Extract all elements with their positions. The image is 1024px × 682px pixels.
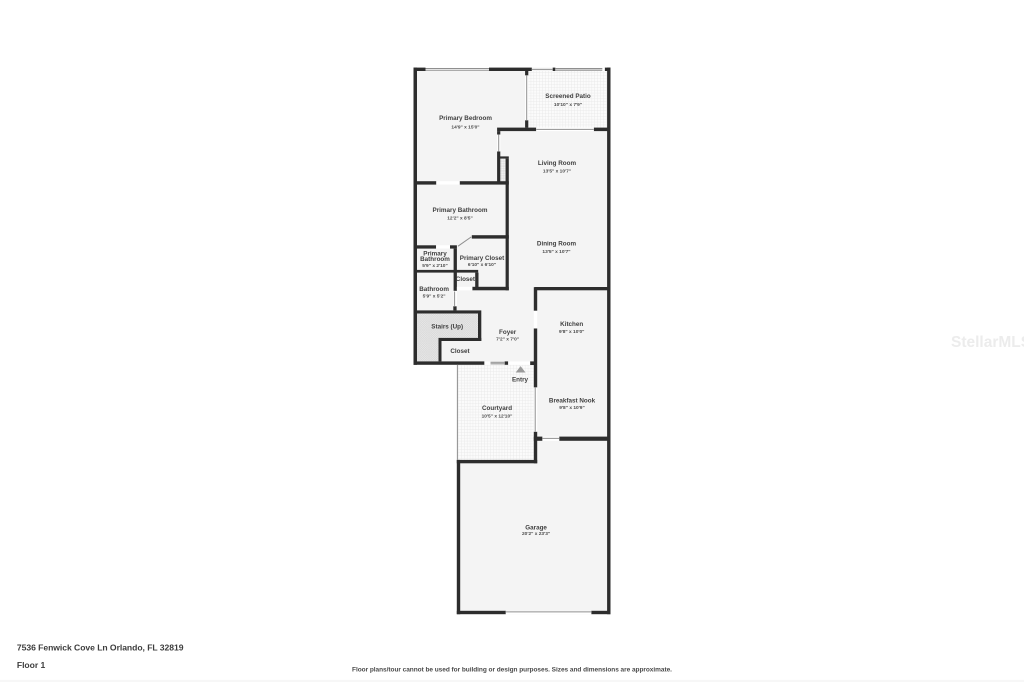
svg-text:Kitchen: Kitchen [560, 321, 583, 328]
svg-text:9'8" x 10'9": 9'8" x 10'9" [559, 405, 585, 411]
svg-text:10'5" x 12'10": 10'5" x 12'10" [482, 414, 513, 420]
svg-text:7536 Fenwick Cove Ln Orlando,: 7536 Fenwick Cove Ln Orlando, FL 32819 [17, 643, 184, 653]
svg-text:5'9" x 2'10": 5'9" x 2'10" [422, 263, 448, 269]
svg-text:Floor plans/tour cannot be use: Floor plans/tour cannot be used for buil… [352, 666, 672, 673]
svg-text:13'5" x 10'7": 13'5" x 10'7" [542, 249, 570, 255]
svg-text:Stairs (Up): Stairs (Up) [431, 324, 463, 331]
svg-text:Bathroom: Bathroom [419, 286, 449, 293]
svg-text:Entry: Entry [512, 377, 529, 384]
svg-text:Primary Bathroom: Primary Bathroom [433, 207, 488, 214]
svg-text:12'2" x 8'5": 12'2" x 8'5" [447, 215, 473, 221]
svg-text:10'10" x 7'9": 10'10" x 7'9" [554, 102, 582, 108]
svg-text:StellarMLS: StellarMLS [951, 334, 1024, 351]
svg-text:Courtyard: Courtyard [482, 405, 512, 412]
svg-text:Foyer: Foyer [499, 329, 517, 336]
svg-text:Breakfast Nook: Breakfast Nook [549, 397, 596, 404]
svg-text:Dining Room: Dining Room [537, 241, 577, 248]
svg-text:Bathroom: Bathroom [420, 256, 450, 263]
svg-text:6'10" x 6'10": 6'10" x 6'10" [468, 262, 496, 268]
svg-text:Living Room: Living Room [538, 160, 577, 167]
svg-text:9'8" x 10'0": 9'8" x 10'0" [559, 329, 585, 335]
svg-text:Closet: Closet [456, 276, 476, 283]
svg-text:Primary Closet: Primary Closet [460, 255, 505, 262]
svg-text:Closet: Closet [450, 348, 470, 355]
svg-text:Screened Patio: Screened Patio [545, 93, 591, 100]
svg-text:Primary Bedroom: Primary Bedroom [439, 115, 492, 122]
svg-text:20'2" x 23'3": 20'2" x 23'3" [522, 531, 550, 537]
svg-text:13'5" x 10'7": 13'5" x 10'7" [543, 169, 571, 175]
svg-text:14'9" x 15'0": 14'9" x 15'0" [451, 124, 479, 130]
svg-text:5'9" x 5'2": 5'9" x 5'2" [423, 293, 446, 299]
svg-text:Floor 1: Floor 1 [17, 660, 46, 670]
svg-text:7'2" x 7'0": 7'2" x 7'0" [496, 336, 519, 342]
svg-text:Garage: Garage [525, 525, 547, 532]
